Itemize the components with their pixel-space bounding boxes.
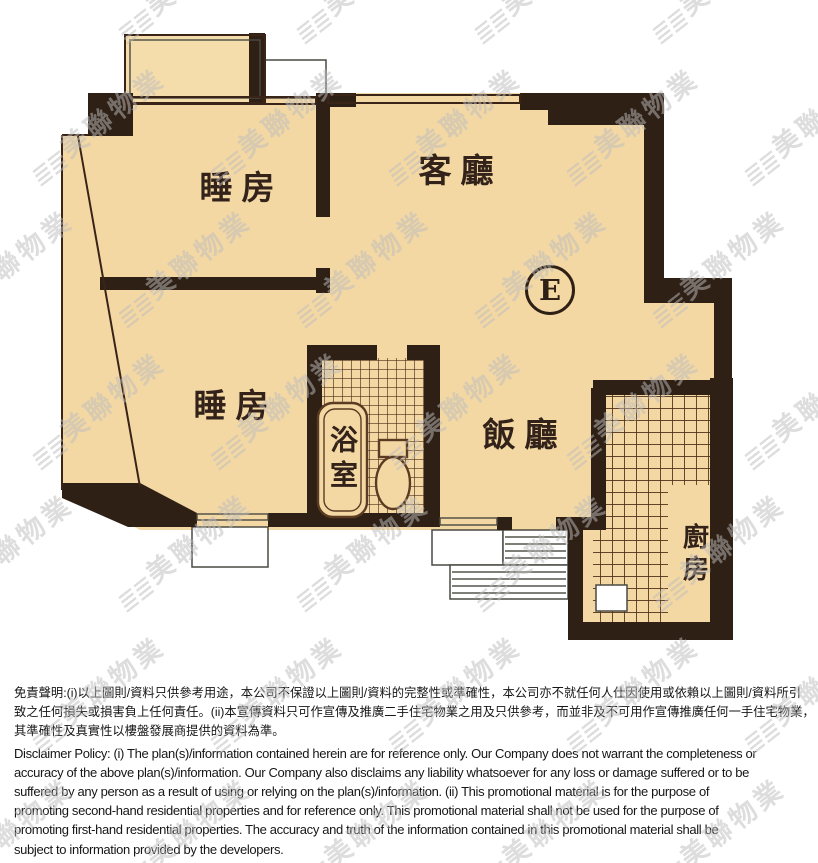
room-label-kitchen: 廚房 bbox=[676, 523, 713, 587]
bay-window-bottom-left bbox=[192, 527, 268, 567]
disclaimer-en-line: promoting first-hand residential propert… bbox=[14, 820, 812, 839]
disclaimer-en-line: accuracy of the above plan(s)/informatio… bbox=[14, 763, 812, 782]
stairs-upper bbox=[503, 530, 568, 565]
window-box-top bbox=[263, 60, 326, 98]
page: 睡房 客廳 睡房 飯廳 浴室 廚房 E 免責聲明:(i)以上圖則/資料只供參考用… bbox=[0, 0, 818, 863]
room-label-living-room: 客廳 bbox=[410, 144, 503, 192]
disclaimer-english: Disclaimer Policy: (i) The plan(s)/infor… bbox=[14, 744, 812, 859]
floor-plan: 睡房 客廳 睡房 飯廳 浴室 廚房 E bbox=[0, 0, 818, 680]
disclaimer-zh-line: 其準確性及真實性以樓盤發展商提供的資料為準。 bbox=[14, 722, 812, 741]
disclaimer-zh-line: 免責聲明:(i)以上圖則/資料只供參考用途，本公司不保證以上圖則/資料的完整性或… bbox=[14, 684, 812, 703]
unit-letter: E bbox=[539, 273, 561, 307]
disclaimer-en-line: suffered by any person as a result of us… bbox=[14, 782, 812, 801]
bay-window-floor bbox=[125, 35, 265, 103]
toilet bbox=[376, 440, 410, 509]
stairs-lower bbox=[450, 565, 568, 599]
room-label-bathroom: 浴室 bbox=[322, 425, 362, 495]
room-label-bedroom1: 睡房 bbox=[191, 161, 284, 209]
unit-letter-badge: E bbox=[525, 265, 575, 315]
disclaimer: 免責聲明:(i)以上圖則/資料只供參考用途，本公司不保證以上圖則/資料的完整性或… bbox=[14, 684, 812, 859]
kitchen-sink bbox=[596, 585, 627, 611]
room-label-bedroom2: 睡房 bbox=[185, 379, 278, 427]
disclaimer-chinese: 免責聲明:(i)以上圖則/資料只供參考用途，本公司不保證以上圖則/資料的完整性或… bbox=[14, 684, 812, 742]
disclaimer-en-line: promoting second-hand residential proper… bbox=[14, 801, 812, 820]
room-label-dining-room: 飯廳 bbox=[474, 408, 567, 456]
disclaimer-en-line: subject to information provided by the d… bbox=[14, 840, 812, 859]
disclaimer-zh-line: 致之任何損失或損害負上任何責任。(ii)本宣傳資料只可作宣傳及推廣二手住宅物業之… bbox=[14, 703, 812, 722]
window-box-bottom-center bbox=[432, 530, 503, 565]
disclaimer-en-line: Disclaimer Policy: (i) The plan(s)/infor… bbox=[14, 744, 812, 763]
